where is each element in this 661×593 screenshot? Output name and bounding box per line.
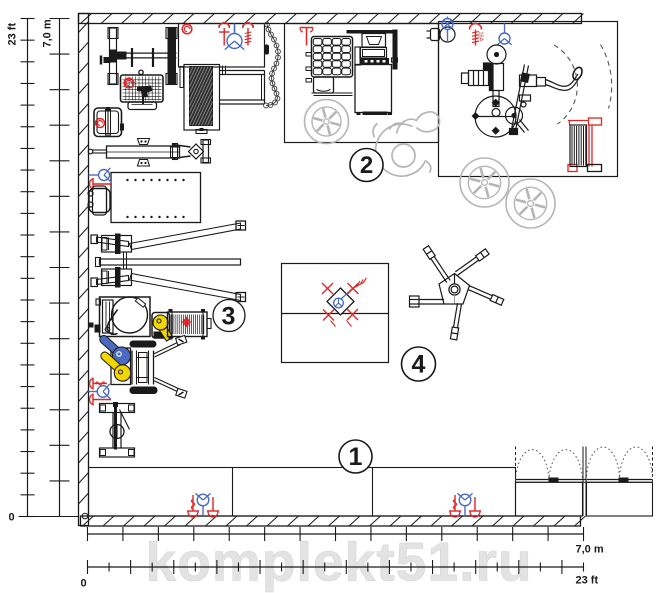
svg-text:2: 2 — [360, 152, 373, 179]
svg-text:16A: 16A — [478, 32, 484, 42]
svg-text:0: 0 — [9, 512, 15, 524]
svg-text:komplekt51.ru: komplekt51.ru — [146, 531, 533, 593]
svg-text:4: 4 — [412, 351, 426, 379]
svg-text:1: 1 — [349, 443, 363, 471]
svg-text:0: 0 — [81, 578, 87, 590]
svg-text:7,0 m: 7,0 m — [576, 544, 604, 556]
svg-text:7,0 m: 7,0 m — [42, 19, 54, 47]
svg-text:3: 3 — [222, 303, 236, 331]
svg-text:23 ft: 23 ft — [576, 575, 599, 587]
svg-text:23 ft: 23 ft — [7, 23, 19, 46]
